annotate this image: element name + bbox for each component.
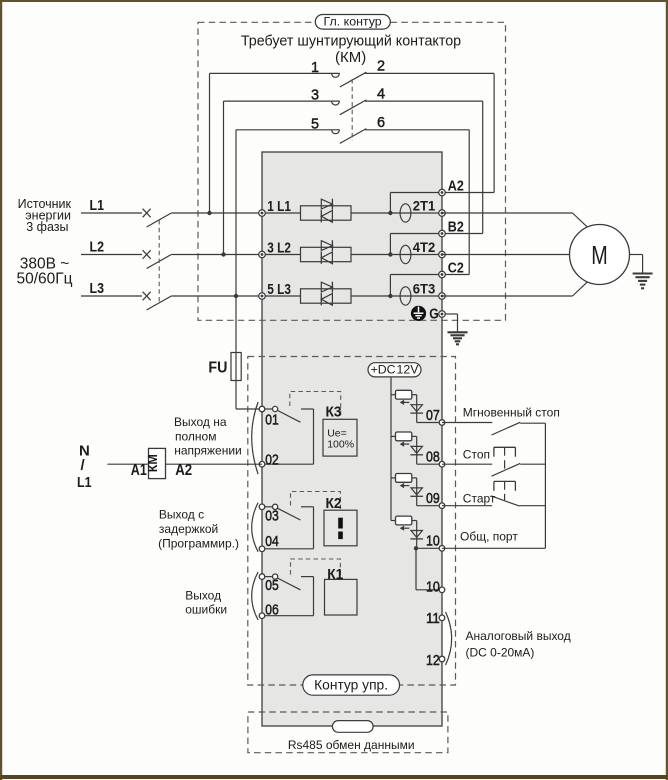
svg-text:М: М bbox=[591, 240, 608, 270]
svg-text:L3: L3 bbox=[90, 280, 105, 297]
svg-text:Стоп: Стоп bbox=[463, 447, 490, 461]
svg-text:A2: A2 bbox=[448, 178, 464, 194]
svg-text:3 L2: 3 L2 bbox=[267, 240, 291, 256]
svg-text:+DC 12V: +DC 12V bbox=[371, 363, 420, 377]
svg-text:04: 04 bbox=[265, 534, 279, 550]
svg-text:G: G bbox=[429, 307, 439, 323]
svg-text:Мгновенный стоп: Мгновенный стоп bbox=[463, 406, 560, 420]
svg-text:01: 01 bbox=[265, 412, 279, 428]
svg-text:Контур упр.: Контур упр. bbox=[314, 678, 388, 693]
svg-text:Аналоговый выход: Аналоговый выход bbox=[466, 629, 571, 643]
svg-text:К3: К3 bbox=[326, 405, 342, 421]
svg-text:A1: A1 bbox=[131, 462, 147, 479]
svg-text:L1: L1 bbox=[77, 474, 92, 491]
svg-text:4: 4 bbox=[377, 86, 385, 102]
svg-text:C2: C2 bbox=[448, 260, 464, 276]
svg-text:3: 3 bbox=[311, 88, 319, 104]
svg-text:Выход: Выход bbox=[185, 588, 221, 602]
svg-text:Выход на: Выход на bbox=[174, 415, 227, 429]
svg-text:Требует шунтирующий контактор: Требует шунтирующий контактор bbox=[241, 33, 461, 49]
svg-text:A2: A2 bbox=[175, 462, 192, 479]
svg-text:Старт: Старт bbox=[463, 491, 496, 505]
svg-text:06: 06 bbox=[265, 602, 279, 618]
svg-text:К1: К1 bbox=[327, 567, 343, 583]
svg-text:10: 10 bbox=[426, 534, 440, 550]
svg-text:(DC 0-20мА): (DC 0-20мА) bbox=[466, 645, 535, 659]
svg-text:5: 5 bbox=[311, 116, 319, 132]
svg-text:12: 12 bbox=[426, 653, 440, 669]
svg-text:6T3: 6T3 bbox=[413, 282, 436, 297]
svg-text:6: 6 bbox=[377, 115, 385, 131]
svg-text:(Программир.): (Программир.) bbox=[158, 536, 239, 550]
svg-text:03: 03 bbox=[265, 509, 279, 525]
svg-text:КМ: КМ bbox=[146, 454, 160, 472]
svg-text:(КМ): (КМ) bbox=[335, 49, 366, 66]
svg-text:4T2: 4T2 bbox=[413, 240, 436, 255]
svg-text:2T1: 2T1 bbox=[413, 199, 436, 214]
svg-text:2: 2 bbox=[377, 59, 385, 75]
svg-text:задержкой: задержкой bbox=[159, 522, 218, 536]
svg-text:ошибки: ошибки bbox=[185, 602, 227, 616]
svg-text:11: 11 bbox=[426, 611, 440, 627]
svg-text:1: 1 bbox=[311, 60, 319, 76]
svg-text:Выход с: Выход с bbox=[159, 507, 204, 521]
svg-text:1 L1: 1 L1 bbox=[267, 199, 291, 215]
svg-text:100%: 100% bbox=[327, 438, 354, 450]
svg-text:напряжении: напряжении bbox=[174, 444, 242, 458]
svg-text:FU: FU bbox=[208, 359, 227, 376]
svg-text:3 фазы: 3 фазы bbox=[26, 220, 68, 234]
svg-text:Rs485 обмен данными: Rs485 обмен данными bbox=[288, 738, 415, 752]
svg-text:L2: L2 bbox=[90, 239, 105, 256]
svg-text:08: 08 bbox=[426, 450, 440, 466]
svg-text:5 L3: 5 L3 bbox=[267, 282, 291, 298]
svg-text:полном: полном bbox=[175, 429, 216, 443]
svg-text:02: 02 bbox=[265, 453, 279, 469]
svg-text:B2: B2 bbox=[448, 219, 464, 235]
svg-text:Гл. контур: Гл. контур bbox=[324, 15, 382, 29]
svg-text:К2: К2 bbox=[326, 496, 342, 512]
svg-text:10: 10 bbox=[426, 580, 440, 596]
svg-text:05: 05 bbox=[265, 578, 279, 594]
svg-text:07: 07 bbox=[426, 408, 440, 424]
svg-text:Общ, порт: Общ, порт bbox=[460, 530, 518, 544]
svg-text:L1: L1 bbox=[90, 197, 105, 214]
svg-text:50/60Гц: 50/60Гц bbox=[16, 271, 72, 288]
svg-text:09: 09 bbox=[426, 491, 440, 507]
